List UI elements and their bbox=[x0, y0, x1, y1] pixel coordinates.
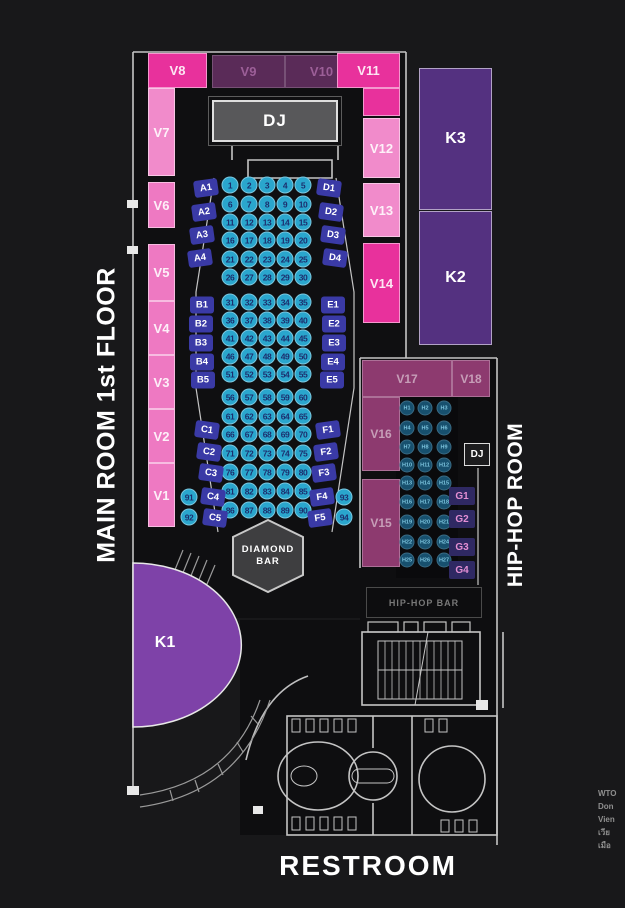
seat-80: 80 bbox=[295, 464, 312, 481]
seat-59: 59 bbox=[277, 389, 294, 406]
vip-table-v7: V7 bbox=[148, 88, 175, 176]
seat-h7: H7 bbox=[400, 440, 415, 455]
seat-47: 47 bbox=[241, 348, 258, 365]
sofa-f3: F3 bbox=[311, 463, 337, 483]
seat-73: 73 bbox=[259, 445, 276, 462]
seat-1: 1 bbox=[222, 177, 239, 194]
seat-23: 23 bbox=[259, 251, 276, 268]
seat-38: 38 bbox=[259, 312, 276, 329]
sofa-d4: D4 bbox=[322, 248, 348, 268]
table-g1: G1 bbox=[449, 487, 475, 505]
seat-h11: H11 bbox=[418, 458, 433, 473]
sofa-c3: C3 bbox=[198, 463, 224, 483]
seat-2: 2 bbox=[241, 177, 258, 194]
seat-87: 87 bbox=[241, 502, 258, 519]
vip-table-v2: V2 bbox=[148, 409, 175, 463]
seat-6: 6 bbox=[222, 196, 239, 213]
sofa-c2: C2 bbox=[196, 442, 222, 462]
seat-26: 26 bbox=[222, 269, 239, 286]
seat-71: 71 bbox=[222, 445, 239, 462]
seat-48: 48 bbox=[259, 348, 276, 365]
seat-37: 37 bbox=[241, 312, 258, 329]
sofa-b1: B1 bbox=[190, 297, 214, 314]
seat-h8: H8 bbox=[418, 440, 433, 455]
seat-56: 56 bbox=[222, 389, 239, 406]
seat-5: 5 bbox=[295, 177, 312, 194]
footer-note-line: WTO bbox=[598, 787, 625, 800]
karaoke-room-k2: K2 bbox=[419, 211, 492, 345]
seat-h6: H6 bbox=[437, 421, 452, 436]
seat-9: 9 bbox=[277, 196, 294, 213]
seat-h26: H26 bbox=[418, 553, 433, 568]
seat-14: 14 bbox=[277, 214, 294, 231]
seat-92: 92 bbox=[181, 509, 198, 526]
table-g2: G2 bbox=[449, 510, 475, 528]
seat-11: 11 bbox=[222, 214, 239, 231]
seat-h13: H13 bbox=[400, 476, 415, 491]
sofa-c1: C1 bbox=[194, 420, 220, 440]
vip-table-v4: V4 bbox=[148, 301, 175, 355]
seat-18: 18 bbox=[259, 232, 276, 249]
footer-note-line: Vien bbox=[598, 813, 625, 826]
seat-75: 75 bbox=[295, 445, 312, 462]
seat-h14: H14 bbox=[418, 476, 433, 491]
seat-h22: H22 bbox=[400, 535, 415, 550]
seat-12: 12 bbox=[241, 214, 258, 231]
dj-booth-main: DJ bbox=[212, 100, 338, 142]
vip-table-v16: V16 bbox=[362, 397, 400, 471]
vip-table-v14: V14 bbox=[363, 243, 400, 323]
sofa-f4: F4 bbox=[309, 487, 335, 507]
hiphop-bar: HIP-HOP BAR bbox=[366, 587, 482, 618]
seat-42: 42 bbox=[241, 330, 258, 347]
seat-33: 33 bbox=[259, 294, 276, 311]
seat-94: 94 bbox=[336, 509, 353, 526]
hiphop-room-title: HIP-HOP ROOM bbox=[504, 423, 528, 587]
footer-note-line: เวีย bbox=[598, 826, 625, 839]
seat-61: 61 bbox=[222, 408, 239, 425]
seat-31: 31 bbox=[222, 294, 239, 311]
vip-table-v15: V15 bbox=[362, 479, 400, 567]
sofa-f2: F2 bbox=[313, 442, 339, 462]
vip-table-v3: V3 bbox=[148, 355, 175, 409]
seat-3: 3 bbox=[259, 177, 276, 194]
seat-84: 84 bbox=[277, 483, 294, 500]
vip-table-v5: V5 bbox=[148, 244, 175, 301]
sofa-e3: E3 bbox=[322, 335, 346, 352]
seat-21: 21 bbox=[222, 251, 239, 268]
vip-table-v1: V1 bbox=[148, 463, 175, 527]
seat-53: 53 bbox=[259, 366, 276, 383]
seat-78: 78 bbox=[259, 464, 276, 481]
footer-note-line: เมือ bbox=[598, 839, 625, 852]
diamond-bar-label: DIAMOND BAR bbox=[232, 544, 304, 568]
sofa-d2: D2 bbox=[318, 202, 344, 222]
seat-49: 49 bbox=[277, 348, 294, 365]
restroom-title: RESTROOM bbox=[279, 850, 457, 882]
seat-19: 19 bbox=[277, 232, 294, 249]
seat-h2: H2 bbox=[418, 401, 433, 416]
seat-46: 46 bbox=[222, 348, 239, 365]
seat-74: 74 bbox=[277, 445, 294, 462]
seat-25: 25 bbox=[295, 251, 312, 268]
seat-58: 58 bbox=[259, 389, 276, 406]
table-g3: G3 bbox=[449, 538, 475, 556]
seat-64: 64 bbox=[277, 408, 294, 425]
seat-66: 66 bbox=[222, 426, 239, 443]
seat-55: 55 bbox=[295, 366, 312, 383]
seat-44: 44 bbox=[277, 330, 294, 347]
sofa-c4: C4 bbox=[200, 487, 226, 507]
seat-20: 20 bbox=[295, 232, 312, 249]
seat-17: 17 bbox=[241, 232, 258, 249]
sofa-f5: F5 bbox=[307, 508, 333, 528]
seat-4: 4 bbox=[277, 177, 294, 194]
sofa-b2: B2 bbox=[189, 316, 213, 333]
seat-41: 41 bbox=[222, 330, 239, 347]
seat-34: 34 bbox=[277, 294, 294, 311]
seat-13: 13 bbox=[259, 214, 276, 231]
table-g4: G4 bbox=[449, 561, 475, 579]
sofa-e2: E2 bbox=[322, 316, 346, 333]
sofa-c5: C5 bbox=[202, 508, 228, 528]
seat-69: 69 bbox=[277, 426, 294, 443]
seat-35: 35 bbox=[295, 294, 312, 311]
seat-43: 43 bbox=[259, 330, 276, 347]
seat-15: 15 bbox=[295, 214, 312, 231]
seat-89: 89 bbox=[277, 502, 294, 519]
seat-h23: H23 bbox=[418, 535, 433, 550]
footer-note: WTODonVienเวียเมือ bbox=[598, 787, 625, 852]
seat-h4: H4 bbox=[400, 421, 415, 436]
seat-7: 7 bbox=[241, 196, 258, 213]
seat-93: 93 bbox=[336, 489, 353, 506]
karaoke-room-k3: K3 bbox=[419, 68, 492, 210]
seat-h20: H20 bbox=[418, 515, 433, 530]
sofa-a1: A1 bbox=[193, 178, 219, 198]
seat-91: 91 bbox=[181, 489, 198, 506]
sofa-b4: B4 bbox=[190, 354, 214, 371]
seat-70: 70 bbox=[295, 426, 312, 443]
seat-36: 36 bbox=[222, 312, 239, 329]
seat-88: 88 bbox=[259, 502, 276, 519]
sofa-a4: A4 bbox=[187, 248, 213, 268]
vip-table-v6: V6 bbox=[148, 182, 175, 228]
sofa-e5: E5 bbox=[320, 372, 344, 389]
seat-54: 54 bbox=[277, 366, 294, 383]
seat-77: 77 bbox=[241, 464, 258, 481]
seat-32: 32 bbox=[241, 294, 258, 311]
vip-table-v11: V11 bbox=[337, 53, 400, 88]
seat-72: 72 bbox=[241, 445, 258, 462]
sofa-b5: B5 bbox=[191, 372, 215, 389]
seat-10: 10 bbox=[295, 196, 312, 213]
seat-16: 16 bbox=[222, 232, 239, 249]
table-v11-extension bbox=[363, 88, 400, 116]
seat-h25: H25 bbox=[400, 553, 415, 568]
seat-h17: H17 bbox=[418, 495, 433, 510]
vip-table-v9: V9 bbox=[212, 55, 285, 88]
seat-8: 8 bbox=[259, 196, 276, 213]
seat-57: 57 bbox=[241, 389, 258, 406]
dj-booth-hiphop: DJ bbox=[464, 443, 490, 466]
seat-51: 51 bbox=[222, 366, 239, 383]
sofa-a2: A2 bbox=[191, 202, 217, 222]
sofa-d3: D3 bbox=[320, 225, 346, 245]
seat-h3: H3 bbox=[437, 401, 452, 416]
seat-39: 39 bbox=[277, 312, 294, 329]
seat-76: 76 bbox=[222, 464, 239, 481]
vip-table-v17: V17 bbox=[362, 360, 452, 397]
sofa-e4: E4 bbox=[321, 354, 345, 371]
seat-65: 65 bbox=[295, 408, 312, 425]
seat-27: 27 bbox=[241, 269, 258, 286]
seat-62: 62 bbox=[241, 408, 258, 425]
seat-22: 22 bbox=[241, 251, 258, 268]
seat-82: 82 bbox=[241, 483, 258, 500]
seat-52: 52 bbox=[241, 366, 258, 383]
sofa-a3: A3 bbox=[189, 225, 215, 245]
seat-h1: H1 bbox=[400, 401, 415, 416]
seat-68: 68 bbox=[259, 426, 276, 443]
vip-table-v12: V12 bbox=[363, 118, 400, 178]
seat-79: 79 bbox=[277, 464, 294, 481]
seat-29: 29 bbox=[277, 269, 294, 286]
seat-67: 67 bbox=[241, 426, 258, 443]
sofa-d1: D1 bbox=[316, 178, 342, 198]
karaoke-room-k1-label: K1 bbox=[155, 634, 175, 652]
seat-h9: H9 bbox=[437, 440, 452, 455]
seat-h16: H16 bbox=[400, 495, 415, 510]
sofa-e1: E1 bbox=[321, 297, 345, 314]
seat-h10: H10 bbox=[400, 458, 415, 473]
seat-40: 40 bbox=[295, 312, 312, 329]
seat-h12: H12 bbox=[437, 458, 452, 473]
seat-h19: H19 bbox=[400, 515, 415, 530]
sofa-f1: F1 bbox=[315, 420, 341, 440]
seat-h5: H5 bbox=[418, 421, 433, 436]
seat-50: 50 bbox=[295, 348, 312, 365]
footer-note-line: Don bbox=[598, 800, 625, 813]
seat-63: 63 bbox=[259, 408, 276, 425]
vip-table-v18: V18 bbox=[452, 360, 490, 397]
vip-table-v8: V8 bbox=[148, 53, 207, 88]
seat-60: 60 bbox=[295, 389, 312, 406]
seat-28: 28 bbox=[259, 269, 276, 286]
sofa-b3: B3 bbox=[189, 335, 213, 352]
main-room-title: MAIN ROOM 1st FLOOR bbox=[93, 267, 122, 563]
vip-table-v13: V13 bbox=[363, 183, 400, 237]
floorplan: K3 K2 K1 DJ DJ DIAMOND BAR HIP-HOP BAR M… bbox=[0, 0, 625, 908]
seat-24: 24 bbox=[277, 251, 294, 268]
seat-83: 83 bbox=[259, 483, 276, 500]
seat-30: 30 bbox=[295, 269, 312, 286]
seat-45: 45 bbox=[295, 330, 312, 347]
